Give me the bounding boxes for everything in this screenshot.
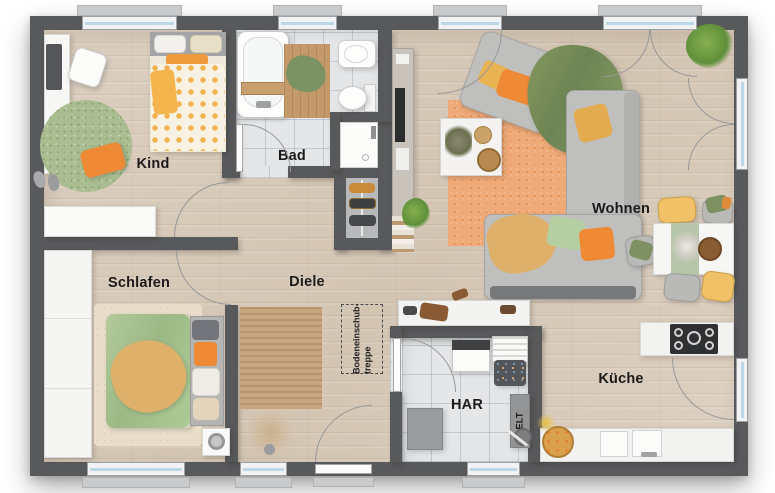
- wall-kind-schlafen: [44, 237, 238, 250]
- desk-monitor: [46, 44, 62, 90]
- wall-bad-wohnen: [378, 30, 392, 250]
- attic-stairs-label: Bodeneinschub-treppe: [351, 304, 373, 375]
- runner-rug: [240, 307, 322, 409]
- washing-machine-panel: [452, 340, 490, 350]
- dining-chair-yellow: [700, 270, 736, 303]
- bathtub-faucet: [256, 101, 271, 108]
- burner-icon: [705, 341, 714, 350]
- burner-icon: [705, 328, 714, 337]
- window-schlafen: [87, 462, 185, 476]
- plant-icon: [402, 198, 430, 230]
- burner-icon: [674, 328, 683, 337]
- window-sill: [598, 5, 702, 16]
- shelf-decor: [396, 148, 409, 170]
- shelf-decor: [396, 54, 409, 64]
- window-sill: [273, 5, 342, 16]
- elt-label: ELT: [515, 412, 526, 429]
- window-wohnen-left: [438, 16, 502, 30]
- sink-faucet: [641, 452, 657, 457]
- window-har: [467, 462, 520, 476]
- entrance-door: [315, 464, 372, 474]
- wall-har-left-stub: [390, 326, 402, 338]
- room-label-kueche: Küche: [598, 371, 643, 387]
- window-sill: [462, 477, 525, 488]
- bathtub-tray: [241, 82, 285, 95]
- storage-box: [407, 408, 443, 450]
- plant-pot: [264, 444, 275, 455]
- burner-icon: [687, 331, 701, 345]
- wall-har-left: [390, 392, 402, 462]
- room-label-har: HAR: [451, 397, 483, 413]
- burner-icon: [674, 341, 683, 350]
- table-lamp-icon: [208, 433, 225, 450]
- shower-faucet: [371, 126, 376, 139]
- pillow-tan: [193, 398, 219, 420]
- dining-chair-yellow: [657, 196, 697, 225]
- window-kind: [82, 16, 177, 30]
- window-wohnen-right: [603, 16, 697, 30]
- wall-shoe-niche-bottom: [334, 238, 392, 250]
- dining-chair-gray: [663, 272, 701, 302]
- shoes-pair: [349, 215, 376, 226]
- window-sill: [77, 5, 182, 16]
- laundry-basket: [494, 360, 526, 386]
- yellow-blanket: [150, 69, 178, 115]
- attic-stairs-outline: Bodeneinschub-treppe: [341, 304, 383, 374]
- wardrobe: [44, 250, 92, 458]
- pillow-white: [192, 368, 220, 396]
- washbasin-bowl: [344, 45, 368, 63]
- yellow-flowers-icon: [536, 414, 556, 432]
- sideboard: [44, 206, 156, 237]
- pillow: [154, 35, 186, 53]
- pillow-orange: [194, 342, 217, 366]
- wardrobe-seam: [45, 318, 91, 319]
- room-label-diele: Diele: [289, 274, 325, 290]
- orange-pillow: [578, 226, 615, 261]
- wall-shower-left: [330, 112, 340, 170]
- floor-plan: Kind Bad Wohnen: [0, 0, 775, 493]
- toilet: [338, 86, 367, 110]
- pillow-gray: [192, 320, 219, 340]
- window-bad: [278, 16, 337, 30]
- window-diele: [240, 462, 287, 476]
- kitchen-entrance-door: [736, 358, 748, 422]
- sink-basin: [600, 431, 628, 457]
- window-sill: [433, 5, 507, 16]
- decor-bowl: [474, 126, 492, 144]
- window-sill: [235, 477, 292, 488]
- decor-bowl: [477, 148, 501, 172]
- shower-drain: [362, 154, 369, 161]
- shoes-pair: [349, 183, 375, 193]
- bad-door-leaf: [236, 124, 243, 172]
- room-label-wohnen: Wohnen: [592, 201, 650, 217]
- terrace-double-door: [736, 78, 748, 170]
- tv: [395, 88, 405, 142]
- har-door-leaf: [393, 338, 401, 392]
- decor-bowl: [698, 237, 722, 261]
- pillow: [190, 35, 222, 53]
- shoes-pair: [500, 305, 516, 314]
- bathtub-inner: [243, 37, 283, 107]
- shoes-pair: [349, 198, 376, 209]
- shoes-pair: [403, 306, 417, 315]
- window-sill: [82, 477, 190, 488]
- door-sill: [313, 477, 374, 487]
- table-plant-icon: [445, 124, 472, 159]
- room-label-kind: Kind: [136, 156, 169, 172]
- wardrobe-seam: [45, 388, 91, 389]
- room-label-schlafen: Schlafen: [108, 275, 170, 291]
- sofa-bottom-base: [490, 286, 636, 299]
